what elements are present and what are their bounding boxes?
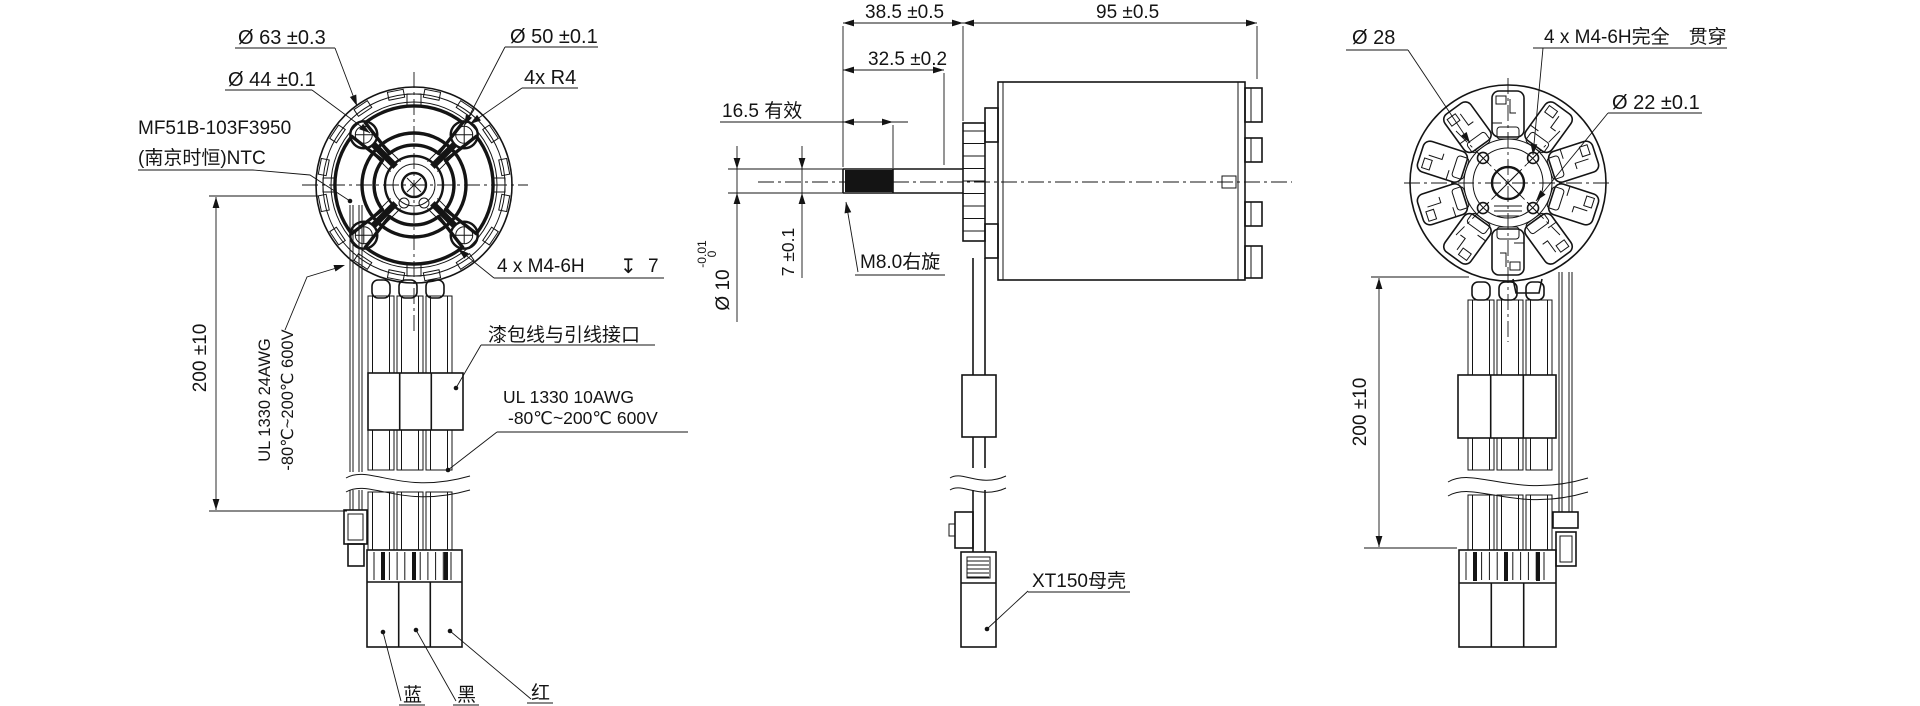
ntc-spec-line2: -80℃~200℃ 600V xyxy=(279,329,297,470)
depth-value-label: 7 xyxy=(648,256,659,277)
phase-wires-rear xyxy=(1468,300,1552,550)
motor-three-view-drawing: Ø 63 ±0.3 Ø 50 ±0.1 Ø 44 ±0.1 4x R4 MF51… xyxy=(0,0,1920,706)
ntc-vendor: (南京时恒)NTC xyxy=(138,147,266,169)
ntc-part-number: MF51B-103F3950 xyxy=(138,118,291,139)
dim-d22-label: Ø 22 ±0.1 xyxy=(1612,92,1700,114)
dim-4xm4-through-label: 4 x M4-6H完全 贯穿 xyxy=(1544,26,1727,48)
dim-shaft-dia: Ø 10 xyxy=(713,269,734,310)
dim-d44-label: Ø 44 ±0.1 xyxy=(228,69,316,91)
dim-d50-label: Ø 50 ±0.1 xyxy=(510,26,598,48)
side-view xyxy=(728,82,1292,647)
engineering-drawing-canvas: Ø 63 ±0.3 Ø 50 ±0.1 Ø 44 ±0.1 4x R4 MF51… xyxy=(0,0,1920,706)
ntc-wire xyxy=(344,205,367,566)
wire-interface-sleeve xyxy=(368,373,463,430)
dim-thread-effective: 16.5 有效 xyxy=(722,100,802,122)
xt150-connector-side xyxy=(961,552,996,647)
dim-shaft-total: 38.5 ±0.5 xyxy=(865,2,944,23)
dim-body-length: 95 ±0.5 xyxy=(1096,2,1159,23)
dim-4xr4-label: 4x R4 xyxy=(524,67,576,89)
dim-flat: 7 ±0.1 xyxy=(778,228,798,277)
depth-symbol-icon: ↧ xyxy=(620,256,637,278)
rear-view xyxy=(1404,78,1612,647)
wire-interface-sleeve-rear xyxy=(1458,375,1556,438)
dim-d28-label: Ø 28 xyxy=(1352,27,1395,49)
motor-body xyxy=(998,82,1262,280)
ntc-spec-line1: UL 1330 24AWG xyxy=(256,338,274,462)
thread-section xyxy=(845,170,893,192)
wire-red-label: 红 xyxy=(531,682,550,704)
wire-black-label: 黑 xyxy=(457,685,476,706)
dim-shank: 32.5 ±0.2 xyxy=(868,49,947,70)
dim-wire-length-rear: 200 ±10 xyxy=(1350,378,1371,447)
front-view xyxy=(302,72,528,647)
dim-d63-label: Ø 63 ±0.3 xyxy=(238,27,326,49)
labels: Ø 63 ±0.3 Ø 50 ±0.1 Ø 44 ±0.1 4x R4 MF51… xyxy=(138,2,1727,706)
wire-interface-label: 漆包线与引线接口 xyxy=(488,324,640,346)
dim-wire-length-front: 200 ±10 xyxy=(190,324,211,393)
phase-wires xyxy=(368,296,452,550)
lead-spec-line2: -80℃~200℃ 600V xyxy=(508,408,658,428)
dim-4xm4-label: 4 x M4-6H xyxy=(497,256,585,277)
connector-rear xyxy=(1459,550,1556,647)
dim-shaft-dia-tol-lower: -0.01 xyxy=(695,240,709,268)
cable-side xyxy=(949,258,1006,647)
lead-spec-line1: UL 1330 10AWG xyxy=(503,387,634,407)
dimension-lines xyxy=(138,20,1727,705)
thread-label: M8.0右旋 xyxy=(860,251,940,273)
front-flange xyxy=(963,108,998,258)
connector-label: XT150母壳 xyxy=(1032,570,1126,592)
shaft xyxy=(728,169,963,193)
wire-blue-label: 蓝 xyxy=(403,684,422,706)
